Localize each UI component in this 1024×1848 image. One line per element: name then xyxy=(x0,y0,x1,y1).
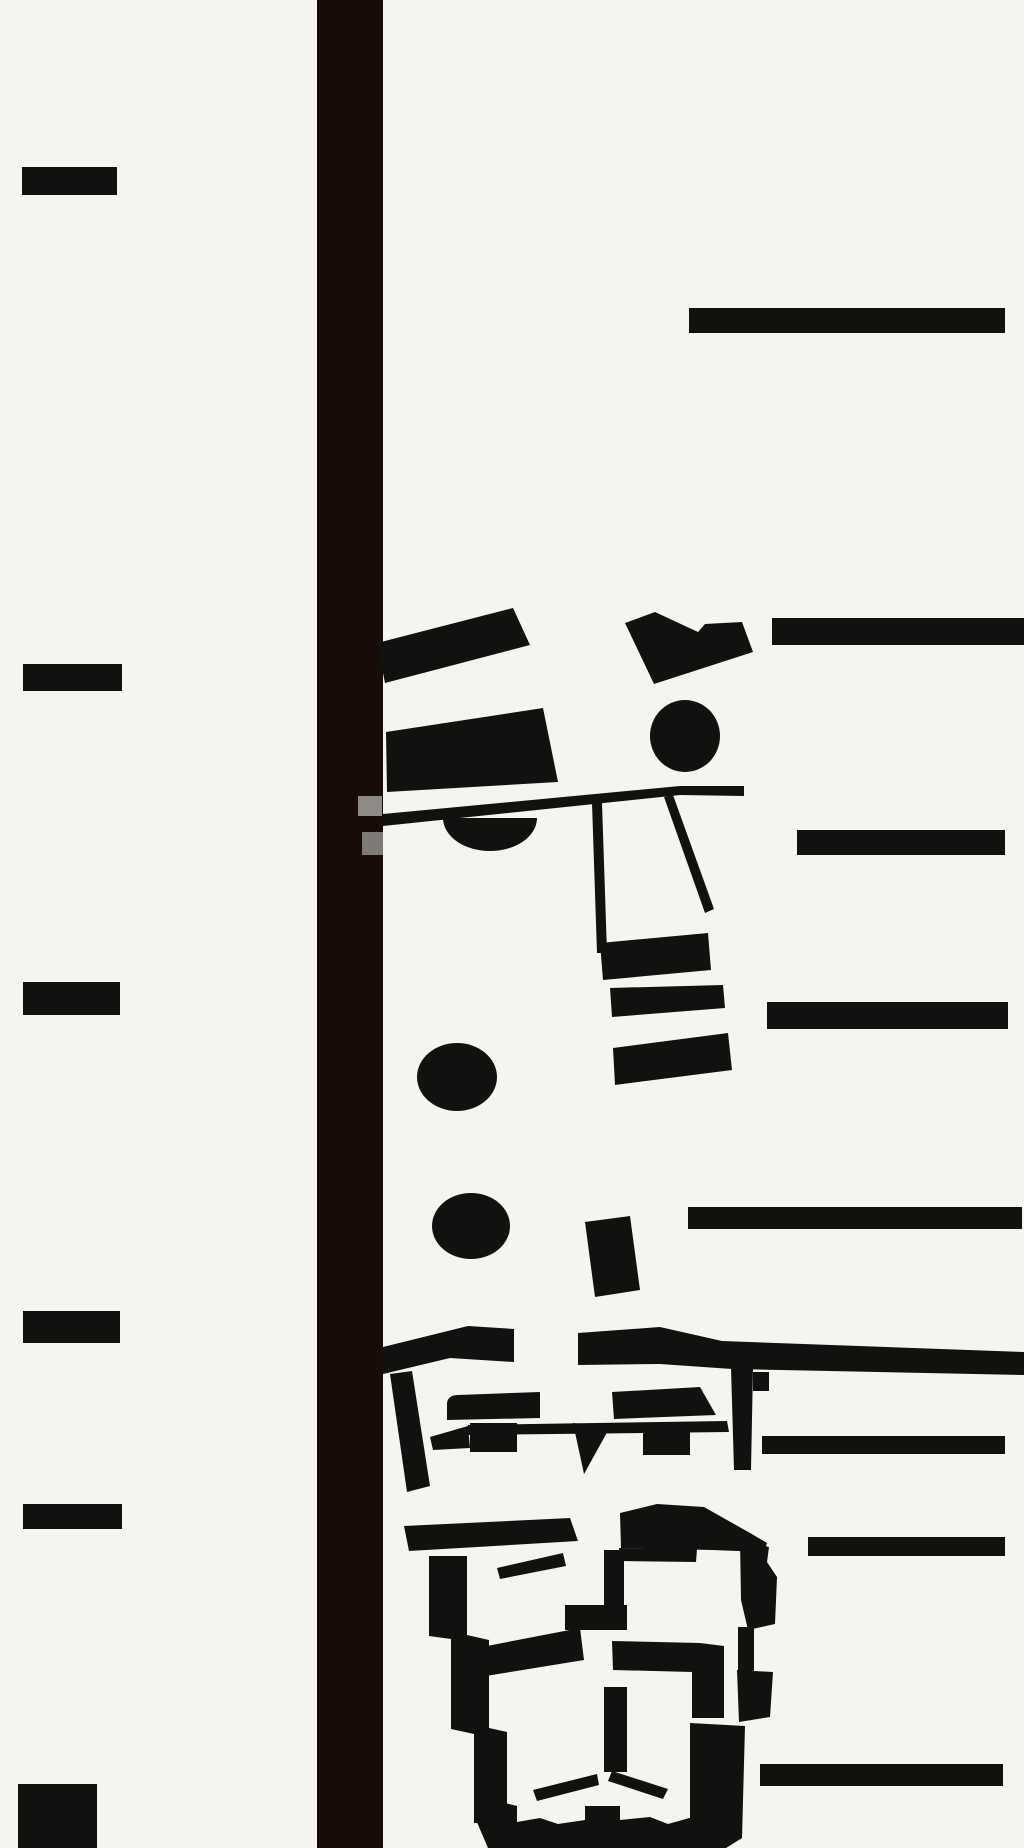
dot-upper xyxy=(417,1043,497,1111)
right-bar-2 xyxy=(772,618,1024,645)
artwork-canvas xyxy=(0,0,1024,1848)
gray-chip-lower xyxy=(362,832,383,855)
face3-side-right-neck xyxy=(738,1627,754,1672)
gray-chip-upper xyxy=(358,796,382,816)
face3-nose xyxy=(604,1550,624,1608)
abstract-artwork xyxy=(0,0,1024,1848)
right-bar-3 xyxy=(797,830,1005,855)
right-bar-7 xyxy=(808,1537,1005,1556)
face2-lens-left xyxy=(447,1392,540,1420)
face2-tooth-right xyxy=(643,1432,690,1455)
face2-lens-right xyxy=(612,1387,716,1419)
right-bar-4 xyxy=(767,1002,1008,1029)
left-tick-2 xyxy=(23,664,122,691)
face3-nose-foot xyxy=(565,1605,627,1630)
left-tick-4 xyxy=(23,1311,120,1343)
right-bar-8 xyxy=(760,1764,1003,1786)
right-bar-6 xyxy=(762,1436,1005,1454)
left-tick-3 xyxy=(23,982,120,1015)
left-tick-1 xyxy=(22,167,117,195)
face3-right-brow xyxy=(619,1548,697,1562)
left-corner-square xyxy=(18,1784,97,1848)
dot-lower xyxy=(432,1193,510,1259)
left-tick-5 xyxy=(23,1504,122,1529)
face3-beard-right xyxy=(690,1723,745,1848)
right-bar-1 xyxy=(689,308,1005,333)
face2-bridge-right xyxy=(731,1368,753,1470)
face3-side-right-low xyxy=(737,1670,773,1722)
vertical-bar xyxy=(317,0,383,1848)
face1-right-eye xyxy=(650,700,720,772)
face3-philtrum xyxy=(604,1687,627,1772)
right-bar-5 xyxy=(688,1207,1022,1229)
face2-ear-right xyxy=(753,1372,769,1391)
